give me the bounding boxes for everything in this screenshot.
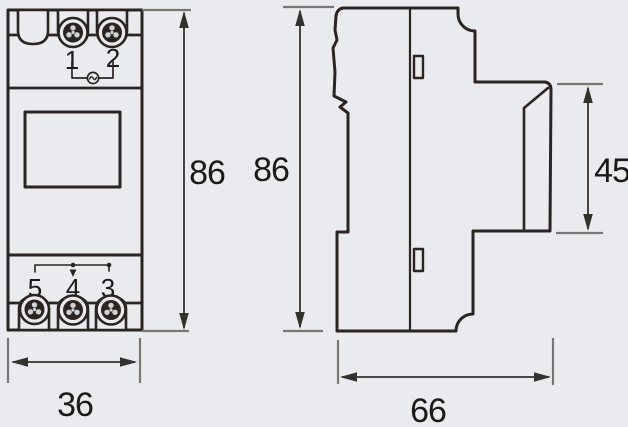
screw-icon	[59, 296, 88, 325]
dim-label-depth: 66	[410, 392, 446, 427]
seam-slot-icon	[414, 249, 423, 271]
terminal-slot-icon	[18, 10, 48, 44]
dim-label-width: 36	[57, 386, 93, 424]
dim-label-side-height: 86	[253, 151, 289, 189]
dim-label-panel-height: 45	[594, 152, 628, 190]
technical-drawing: 1 2 5 4 3	[0, 0, 628, 427]
drawing-background	[0, 0, 628, 427]
screw-icon	[20, 295, 49, 324]
dim-label-front-height: 86	[189, 154, 225, 192]
screw-icon	[59, 18, 88, 47]
seam-slot-icon	[414, 56, 423, 78]
screw-icon	[97, 296, 126, 325]
